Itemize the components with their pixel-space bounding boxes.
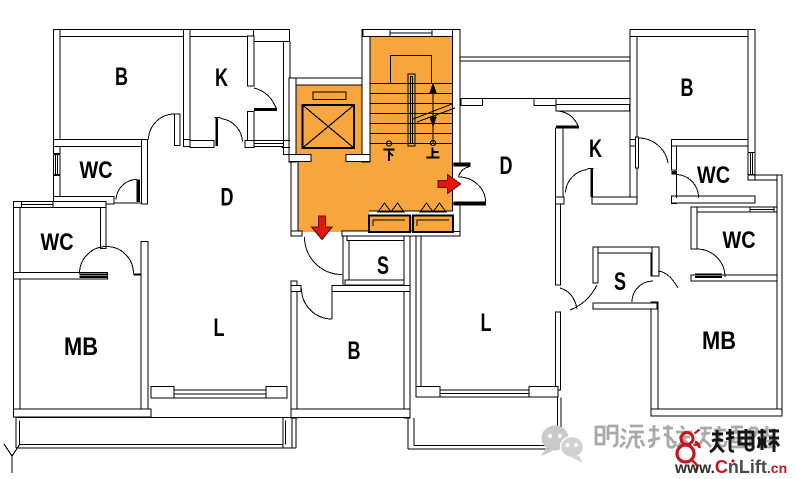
svg-text:D: D	[221, 184, 234, 212]
svg-text:D: D	[500, 152, 513, 180]
svg-text:S: S	[614, 268, 626, 296]
svg-text:K: K	[589, 135, 602, 163]
svg-text:B: B	[348, 337, 361, 365]
svg-text:B: B	[115, 63, 128, 91]
svg-text:WC: WC	[41, 229, 74, 256]
svg-text:www.CnLift.cn: www.CnLift.cn	[674, 457, 787, 477]
svg-text:WC: WC	[80, 157, 113, 184]
svg-text:B: B	[681, 74, 694, 102]
svg-text:MB: MB	[64, 333, 98, 361]
svg-text:WC: WC	[723, 227, 756, 254]
svg-text:K: K	[215, 64, 228, 92]
svg-text:S: S	[377, 252, 389, 280]
svg-text:L: L	[214, 314, 225, 342]
svg-text:L: L	[481, 309, 492, 337]
svg-text:MB: MB	[702, 327, 736, 355]
svg-text:WC: WC	[697, 162, 730, 189]
